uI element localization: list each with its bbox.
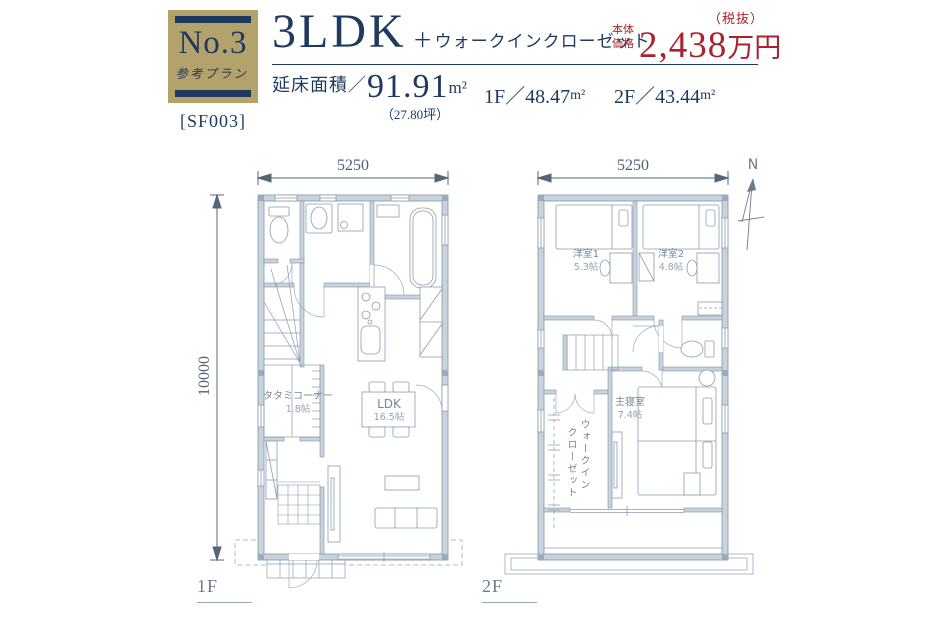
page-title: 3LDK＋ウォークインクローゼット <box>272 6 651 59</box>
bedroom2-label: 洋室2 4.8帖 <box>645 249 697 273</box>
floor1-area: 1F／48.47m² <box>484 80 585 109</box>
total-area: 延床面積／91.91m² <box>272 68 467 106</box>
total-area-value: 91.91 <box>367 68 449 105</box>
tsubo-area: （27.80坪） <box>355 104 475 123</box>
tax-note: （税抜） <box>708 8 764 27</box>
wic-label-line2: クローゼット <box>563 427 578 499</box>
ldk-room-label: LDK 16.5帖 <box>362 397 416 424</box>
bedroom1-label: 洋室1 5.3帖 <box>560 249 612 273</box>
total-area-label: 延床面積／ <box>272 75 367 95</box>
badge-bottom-bar <box>175 90 251 97</box>
title-plus: ＋ <box>413 30 433 52</box>
floor1-plan-drawing <box>205 170 495 615</box>
plan-number-badge: No.3 参考プラン <box>168 10 258 103</box>
wic-label-line1: ウォークイン <box>576 419 591 491</box>
north-arrow-icon <box>738 178 764 250</box>
title-main: 3LDK <box>272 5 407 58</box>
plan-number: No.3 <box>168 27 258 60</box>
master-bedroom-label: 主寝室 7.4帖 <box>600 397 660 421</box>
price-label: 本体価格 <box>612 24 634 52</box>
price-amount: 2,438 <box>639 25 727 66</box>
plan-code: [SF003] <box>168 111 258 132</box>
dimension-lines <box>538 171 728 185</box>
tatami-room-label: タタミコーナー 1.8帖 <box>254 391 342 415</box>
floor2-plan-drawing <box>500 170 778 615</box>
price-unit: 万円 <box>727 33 781 63</box>
plan-type: 参考プラン <box>166 63 259 82</box>
badge-top-bar <box>175 16 251 23</box>
total-area-unit: m² <box>449 78 467 97</box>
floor2-area: 2F／43.44m² <box>614 80 715 109</box>
floor-plan-flyer: No.3 参考プラン [SF003] 3LDK＋ウォークインクローゼット 本体価… <box>0 0 930 620</box>
price-block: 本体価格2,438万円 <box>612 24 781 67</box>
